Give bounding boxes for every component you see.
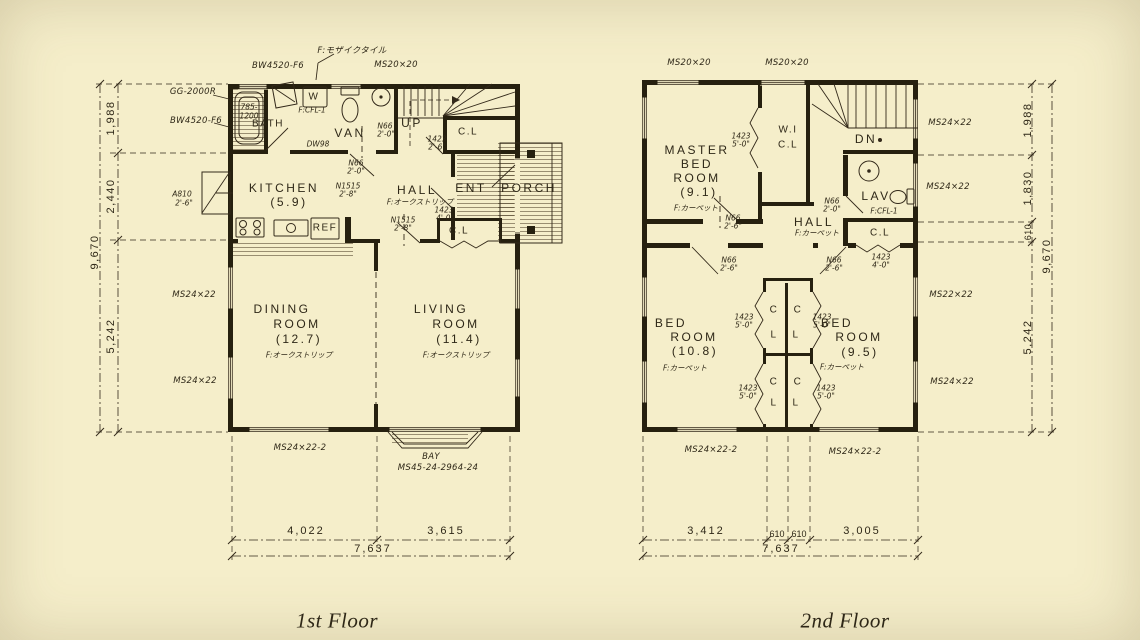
room-area-bed108: (10.8) [672,344,718,358]
dim-bottom-610b: 610 [791,529,806,539]
dim-left-5242: 5,242 [105,318,117,353]
door-size-n66-bed108: 2'-6" [720,264,738,273]
washer-label: W [309,92,320,103]
note-floor-living: F:オークストリップ [423,350,489,361]
room-label-dining: DINING [254,302,311,316]
closet-label-ent: C.L [449,226,469,237]
closet-letter-c2: C [794,305,803,316]
window-label-ms24-b1: MS24×22-2 [685,445,738,455]
room-label-bed108-2: ROOM [670,330,717,344]
door-size-1423-hall-closet: 4'-0" [436,214,454,223]
room-label-living: LIVING [414,302,468,316]
closet-letter-l3: L [770,398,777,409]
bay-label: BAY [422,452,440,462]
room-label-bed95-2: ROOM [835,330,882,344]
stairs-label-up: UP [401,116,423,130]
note-floor-lav: F:CFL-1 [870,207,897,216]
room-label-living2: ROOM [432,317,479,331]
dim-left-9670: 9,670 [89,234,101,269]
door-size-n66-master: 2'-6" [724,222,742,231]
room-label-lav: LAV [861,189,890,203]
window-label-ms24-r1: MS24×22 [928,118,972,128]
dim-left-1988: 1,988 [105,100,117,135]
door-size-n1515-hall: 2'-8" [394,224,412,233]
closet-label-lav: C.L [870,228,890,239]
door-size-1423-wicl: 5'-0" [732,140,750,149]
window-label-bw4520-left: BW4520-F6 [170,116,222,126]
note-floor-master: F:カーペット [674,203,718,214]
closet-door-size-d: 5'-0" [817,392,835,401]
labels-layer: 1st Floor 2nd Floor F:モザイクタイルBW4520-F6MS… [0,0,1140,640]
window-label-ms24-bottom: MS24×22-2 [274,443,327,453]
room-area-living: (11.4) [436,332,481,346]
dim-bottom-3412: 3,412 [687,525,725,537]
dim-right-5242: 5,242 [1022,319,1034,354]
dim-bottom-7637: 7,637 [762,543,800,555]
closet-label-stairs: C.L [458,127,478,138]
tub-size-785: 785- [240,103,257,112]
room-label-dining2: ROOM [273,317,320,331]
closet-label-wi: W.I [779,125,798,136]
room-label-bed108-1: BED [655,316,687,330]
door-size-n1515-kitchen: 2'-8" [339,190,357,199]
closet-letter-c3: C [770,377,779,388]
dim-bottom-7637: 7,637 [354,543,392,555]
note-floor-cf-van: F:CFL-1 [298,106,325,115]
bay-spec-label: MS45-24-2964-24 [398,463,479,473]
room-area-dining: (12.7) [276,332,322,346]
room-area-kitchen: (5.9) [270,195,307,209]
window-label-ms24-r4: MS24×22 [930,377,974,387]
dim-right-1988: 1,988 [1022,102,1034,137]
room-area-master: (9.1) [680,185,717,199]
vent-size-a810: 2'-6" [175,199,193,208]
dim-bottom-3005: 3,005 [843,525,881,537]
window-label-ms20-b: MS20×20 [765,58,809,68]
closet-label-wicl: C.L [778,140,798,151]
room-label-ent: ENT [455,181,487,195]
window-label-ms24-r2: MS24×22 [926,182,970,192]
room-label-kitchen: KITCHEN [249,181,319,195]
window-label-ms24-b2: MS24×22-2 [829,447,882,457]
closet-letter-l2: L [792,330,799,341]
door-size-1423-stair-closet: 2'-6" [428,143,446,152]
note-floor-dining: F:オークストリップ [266,350,332,361]
room-label-bath: BATH [252,119,284,130]
appliance-label-ref: REF [313,223,338,234]
dim-left-2440: 2,440 [105,178,117,213]
closet-letter-l4: L [792,398,799,409]
room-label-van: VAN [334,126,365,140]
room-label-hall: HALL [397,183,437,197]
closet-door-size-c: 5'-0" [739,392,757,401]
room-label-master2: BED [681,157,713,171]
dim-right-1830: 1,830 [1022,170,1034,205]
note-floor-bed95: F:カーペット [820,362,864,373]
dim-bottom-610a: 610 [769,529,784,539]
window-label-ms24-left1: MS24×22 [172,290,216,300]
note-dw98: DW98 [307,140,330,149]
window-label-ms20x20: MS20×20 [374,60,418,70]
closet-letter-c1: C [770,305,779,316]
window-label-ms22-r3: MS22×22 [929,290,973,300]
dim-bottom-4022: 4,022 [287,525,325,537]
equip-label-gg2000r: GG-2000R [170,87,216,97]
note-floor-bed108: F:カーペット [663,363,707,374]
room-label-porch: PORCH [501,181,557,195]
door-size-n66-lav: 2'-0" [823,205,841,214]
dim-right-9670: 9,670 [1041,238,1053,273]
floorplan-sheet: 1st Floor 2nd Floor F:モザイクタイルBW4520-F6MS… [0,0,1140,640]
stairs-label-dn: DN [855,132,877,146]
note-floor-hall2: F:カーペット [795,228,839,239]
window-label-ms24-left2: MS24×22 [173,376,217,386]
floor-title-1st: 1st Floor [296,609,378,634]
door-size-n66-van: 2'-0" [377,130,395,139]
window-label-bw4520-top: BW4520-F6 [252,61,304,71]
door-size-n66-kitchen: 2'-0" [347,167,365,176]
closet-door-size-b: 5'-0" [813,321,831,330]
room-label-master3: ROOM [673,171,720,185]
room-area-bed95: (9.5) [841,345,878,359]
dim-bottom-3615: 3,615 [427,525,465,537]
door-size-1423-lavcl: 4'-0" [872,261,890,270]
vent-label-a810: A810 [172,190,191,199]
door-size-n66-bed95: 2'-6" [825,264,843,273]
room-label-master1: MASTER [664,143,729,157]
dim-right-610: 610 [1023,224,1033,241]
window-label-ms20-a: MS20×20 [667,58,711,68]
closet-letter-l1: L [770,330,777,341]
note-floor-mosaic-tile: F:モザイクタイル [317,44,386,56]
closet-letter-c4: C [794,377,803,388]
closet-door-size-a: 5'-0" [735,321,753,330]
floor-title-2nd: 2nd Floor [800,609,889,634]
